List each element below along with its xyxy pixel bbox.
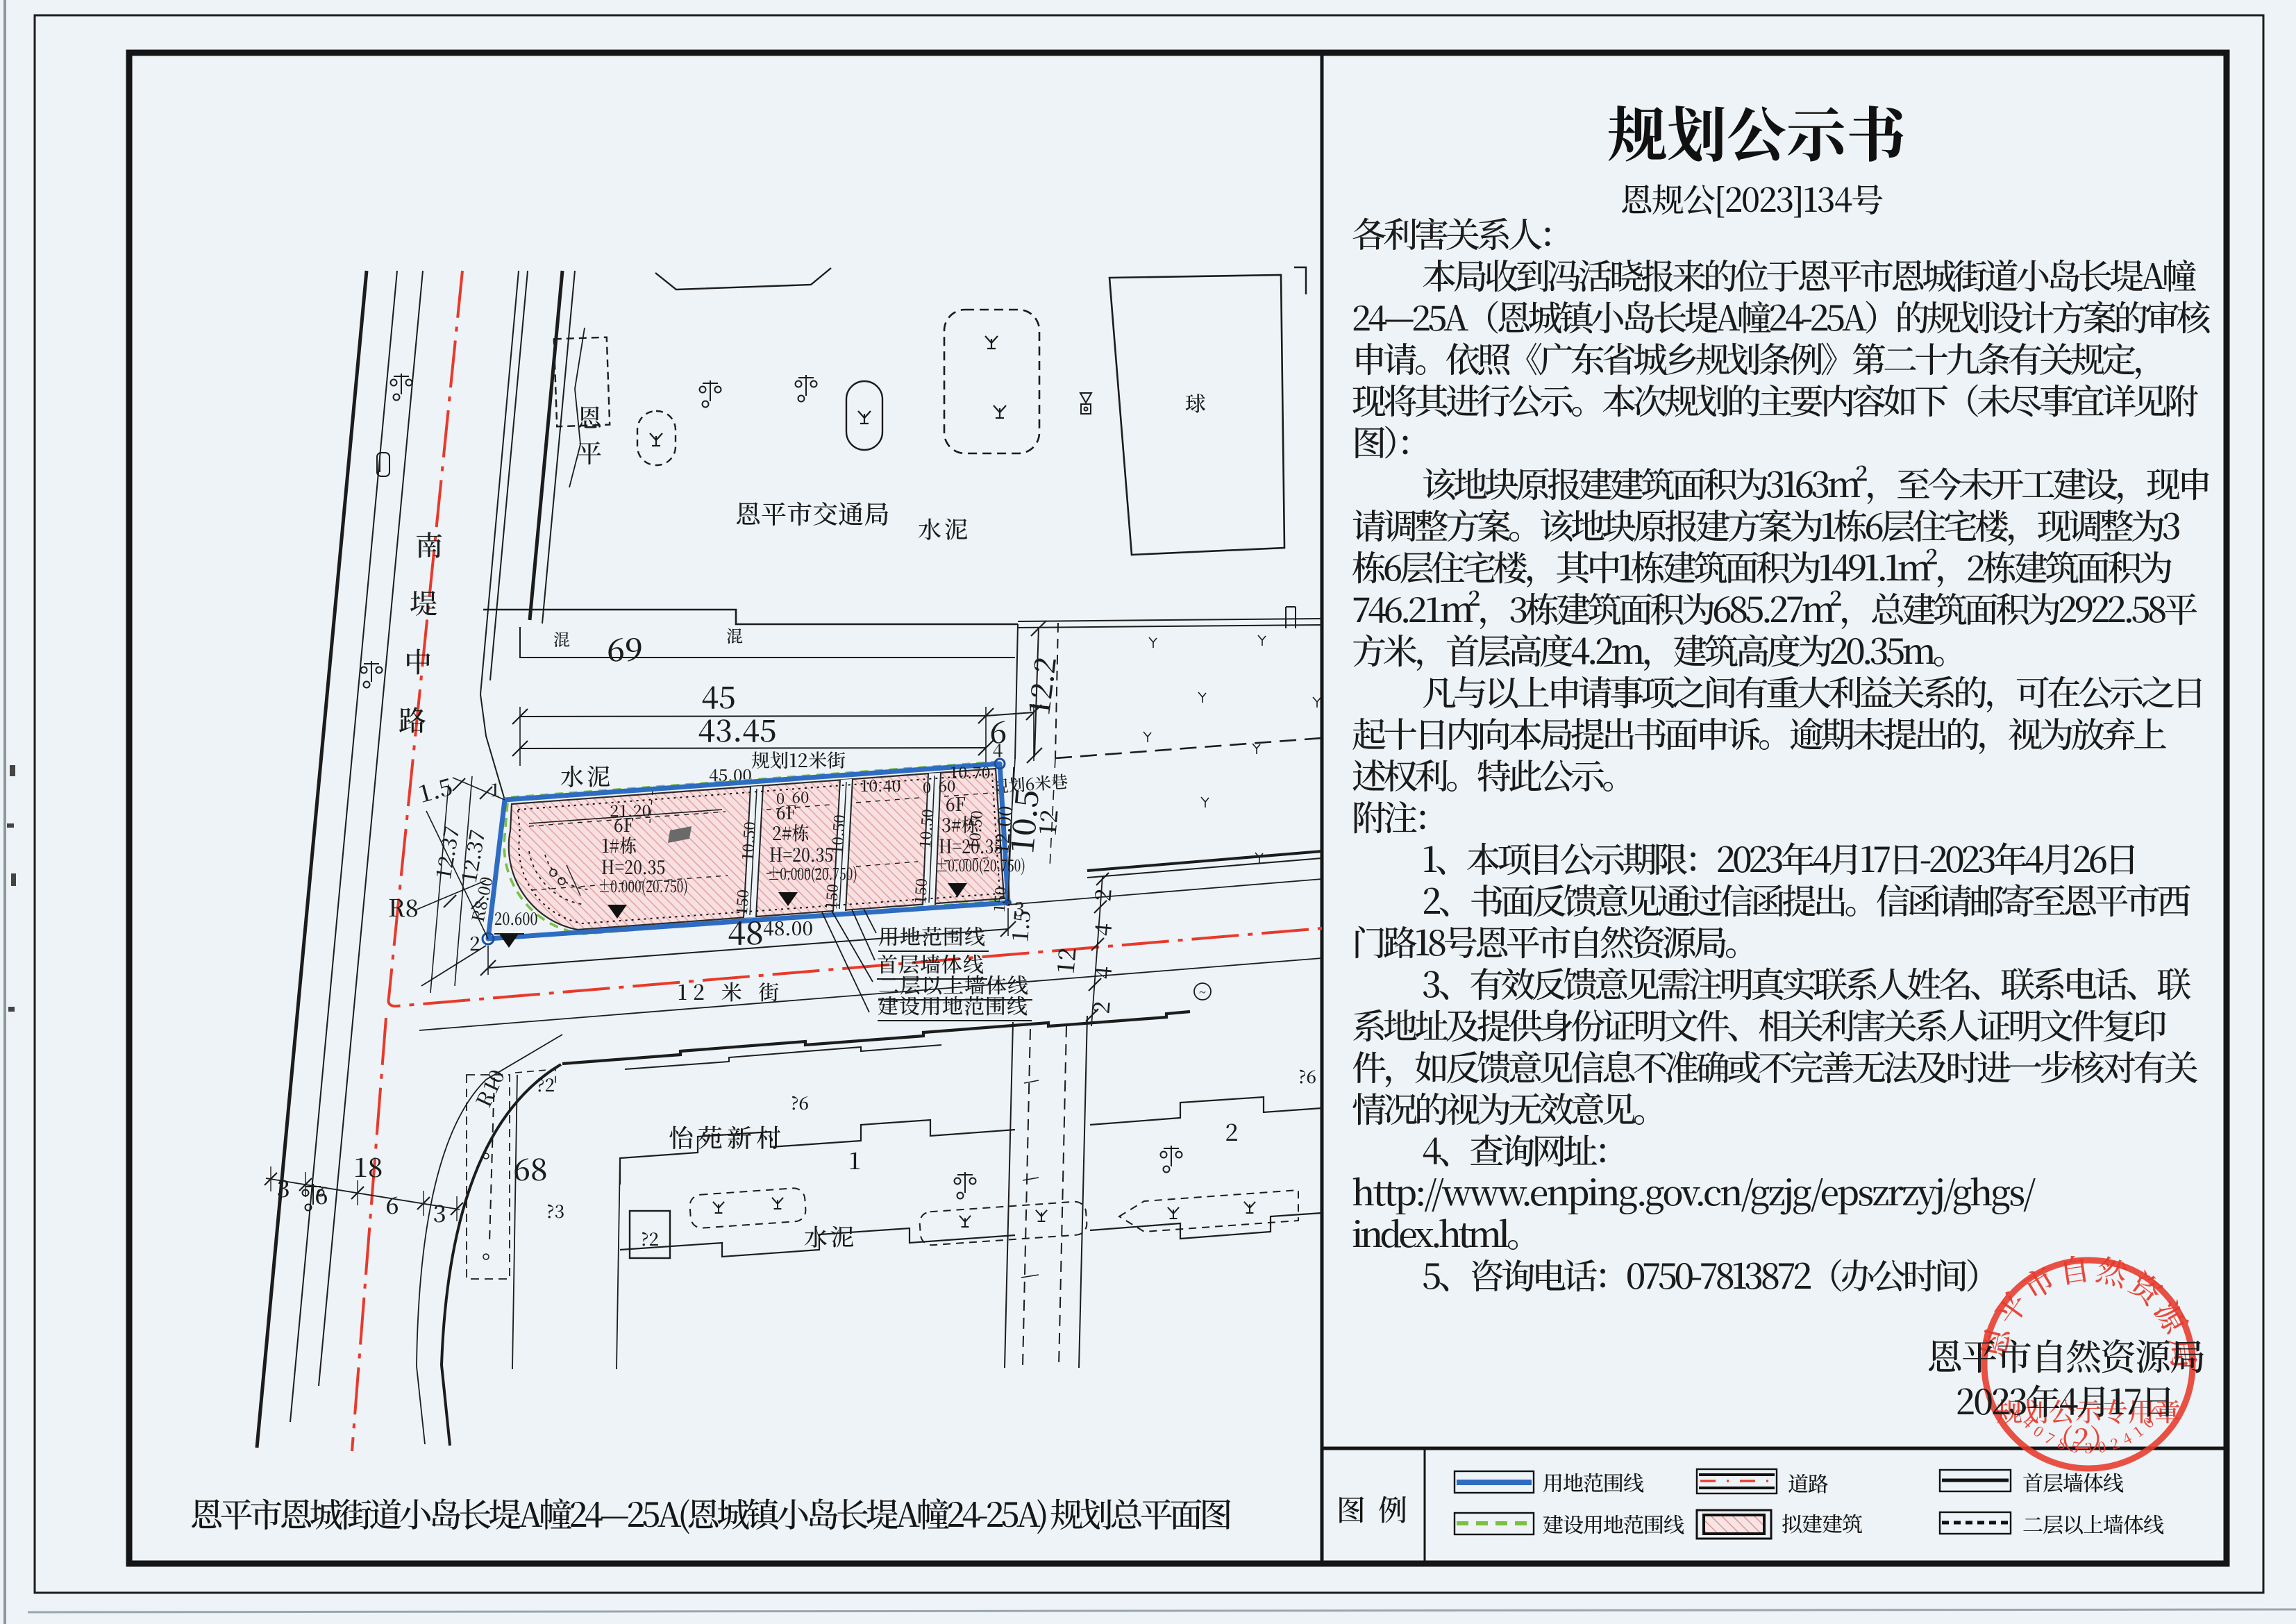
svg-text:2: 2 [1085, 887, 1118, 903]
svg-text:68: 68 [513, 1145, 547, 1189]
svg-text:?3: ?3 [546, 1198, 564, 1223]
svg-text:水泥: 水泥 [918, 511, 971, 545]
svg-text:3: 3 [2084, 1437, 2093, 1458]
svg-text:69: 69 [607, 625, 643, 671]
svg-text:R8: R8 [388, 889, 419, 923]
svg-text:?6: ?6 [791, 1089, 809, 1115]
svg-text:150: 150 [909, 878, 932, 905]
svg-text:60: 60 [792, 786, 810, 807]
svg-text:20.600: 20.600 [494, 905, 538, 930]
svg-text:10.50: 10.50 [963, 810, 987, 851]
svg-text:3: 3 [276, 1170, 290, 1204]
svg-text:1.5: 1.5 [1003, 909, 1037, 944]
svg-text:?2: ?2 [537, 1071, 555, 1097]
svg-text:3: 3 [433, 1195, 446, 1229]
svg-text:混: 混 [726, 623, 743, 647]
svg-text:水泥: 水泥 [560, 758, 613, 792]
svg-text:6: 6 [315, 1177, 328, 1211]
svg-text:10.5: 10.5 [997, 787, 1048, 855]
svg-text:10.50: 10.50 [914, 808, 938, 849]
svg-text:4: 4 [993, 737, 1003, 762]
svg-text:中: 中 [404, 641, 432, 680]
svg-text:0: 0 [776, 787, 785, 809]
svg-text:±0.000(20.750): ±0.000(20.750) [768, 860, 857, 884]
svg-text:南: 南 [415, 524, 443, 564]
svg-text:堤: 堤 [410, 583, 437, 622]
svg-text:10.50: 10.50 [736, 821, 760, 862]
svg-text:6: 6 [385, 1187, 399, 1221]
svg-text:2: 2 [1084, 1000, 1116, 1015]
svg-text:用地范围线: 用地范围线 [878, 920, 986, 951]
svg-text:?2: ?2 [641, 1225, 659, 1251]
svg-text:12 米 街: 12 米 街 [678, 976, 785, 1006]
svg-text:路: 路 [399, 699, 426, 739]
svg-text:12: 12 [1046, 946, 1082, 976]
svg-text:球: 球 [1185, 387, 1206, 417]
svg-text:43.45: 43.45 [698, 706, 776, 751]
svg-text:10.50: 10.50 [826, 814, 850, 855]
svg-text:0: 0 [923, 776, 931, 798]
svg-text:48.00: 48.00 [763, 914, 813, 941]
svg-text:恩平市交通局: 恩平市交通局 [735, 494, 889, 531]
svg-text:R10: R10 [467, 1064, 511, 1112]
svg-text:18: 18 [353, 1146, 383, 1184]
svg-text:怡苑新村: 怡苑新村 [669, 1119, 785, 1155]
svg-text:恩: 恩 [577, 399, 602, 435]
svg-text:混: 混 [553, 626, 570, 651]
svg-text:48: 48 [728, 908, 764, 954]
svg-text:1: 1 [490, 776, 501, 802]
svg-text:1: 1 [848, 1142, 861, 1176]
svg-text:10.70: 10.70 [949, 760, 990, 783]
svg-text:12.2: 12.2 [1016, 654, 1065, 717]
svg-text:150: 150 [820, 883, 844, 910]
svg-text:建设用地范围线: 建设用地范围线 [878, 989, 1028, 1020]
svg-text:平: 平 [577, 435, 602, 470]
svg-text:1.5: 1.5 [414, 768, 455, 810]
svg-text:规划12米街: 规划12米街 [751, 746, 846, 773]
svg-text:~: ~ [1199, 982, 1206, 1001]
svg-text:4: 4 [1085, 965, 1118, 980]
svg-text:2: 2 [1225, 1114, 1238, 1148]
svg-text:±0.000(20.750): ±0.000(20.750) [598, 873, 688, 896]
svg-text:水泥: 水泥 [804, 1219, 857, 1253]
svg-text:?6: ?6 [1298, 1063, 1316, 1089]
svg-text:4: 4 [1085, 922, 1118, 937]
svg-text:10.40: 10.40 [860, 773, 900, 796]
svg-text:±0.000(20.750): ±0.000(20.750) [936, 852, 1025, 876]
svg-text:21.20: 21.20 [610, 798, 651, 821]
